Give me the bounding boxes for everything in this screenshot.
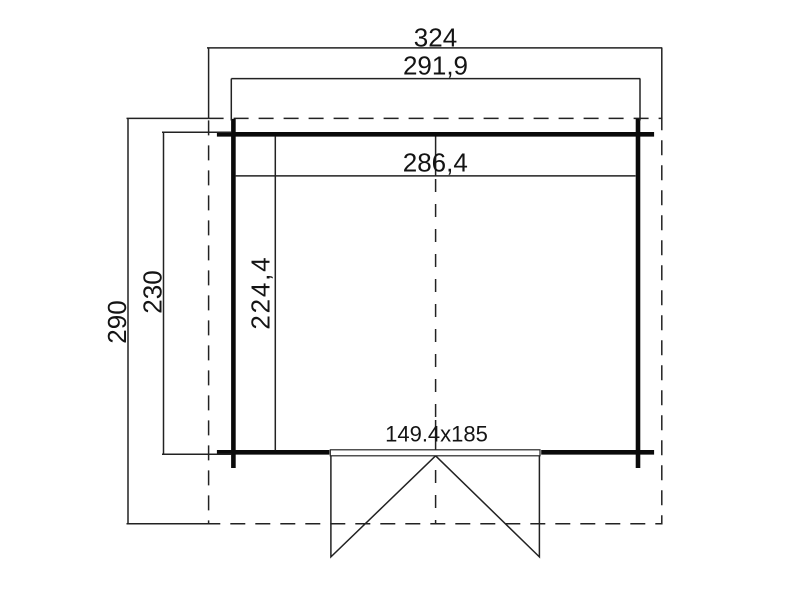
svg-text:286,4: 286,4 (403, 147, 468, 177)
svg-text:324: 324 (414, 22, 457, 52)
svg-text:224,4: 224,4 (245, 256, 275, 330)
svg-text:149.4x185: 149.4x185 (385, 421, 488, 446)
svg-text:230: 230 (138, 270, 168, 313)
svg-text:291,9: 291,9 (403, 50, 468, 80)
svg-text:290: 290 (102, 300, 132, 343)
